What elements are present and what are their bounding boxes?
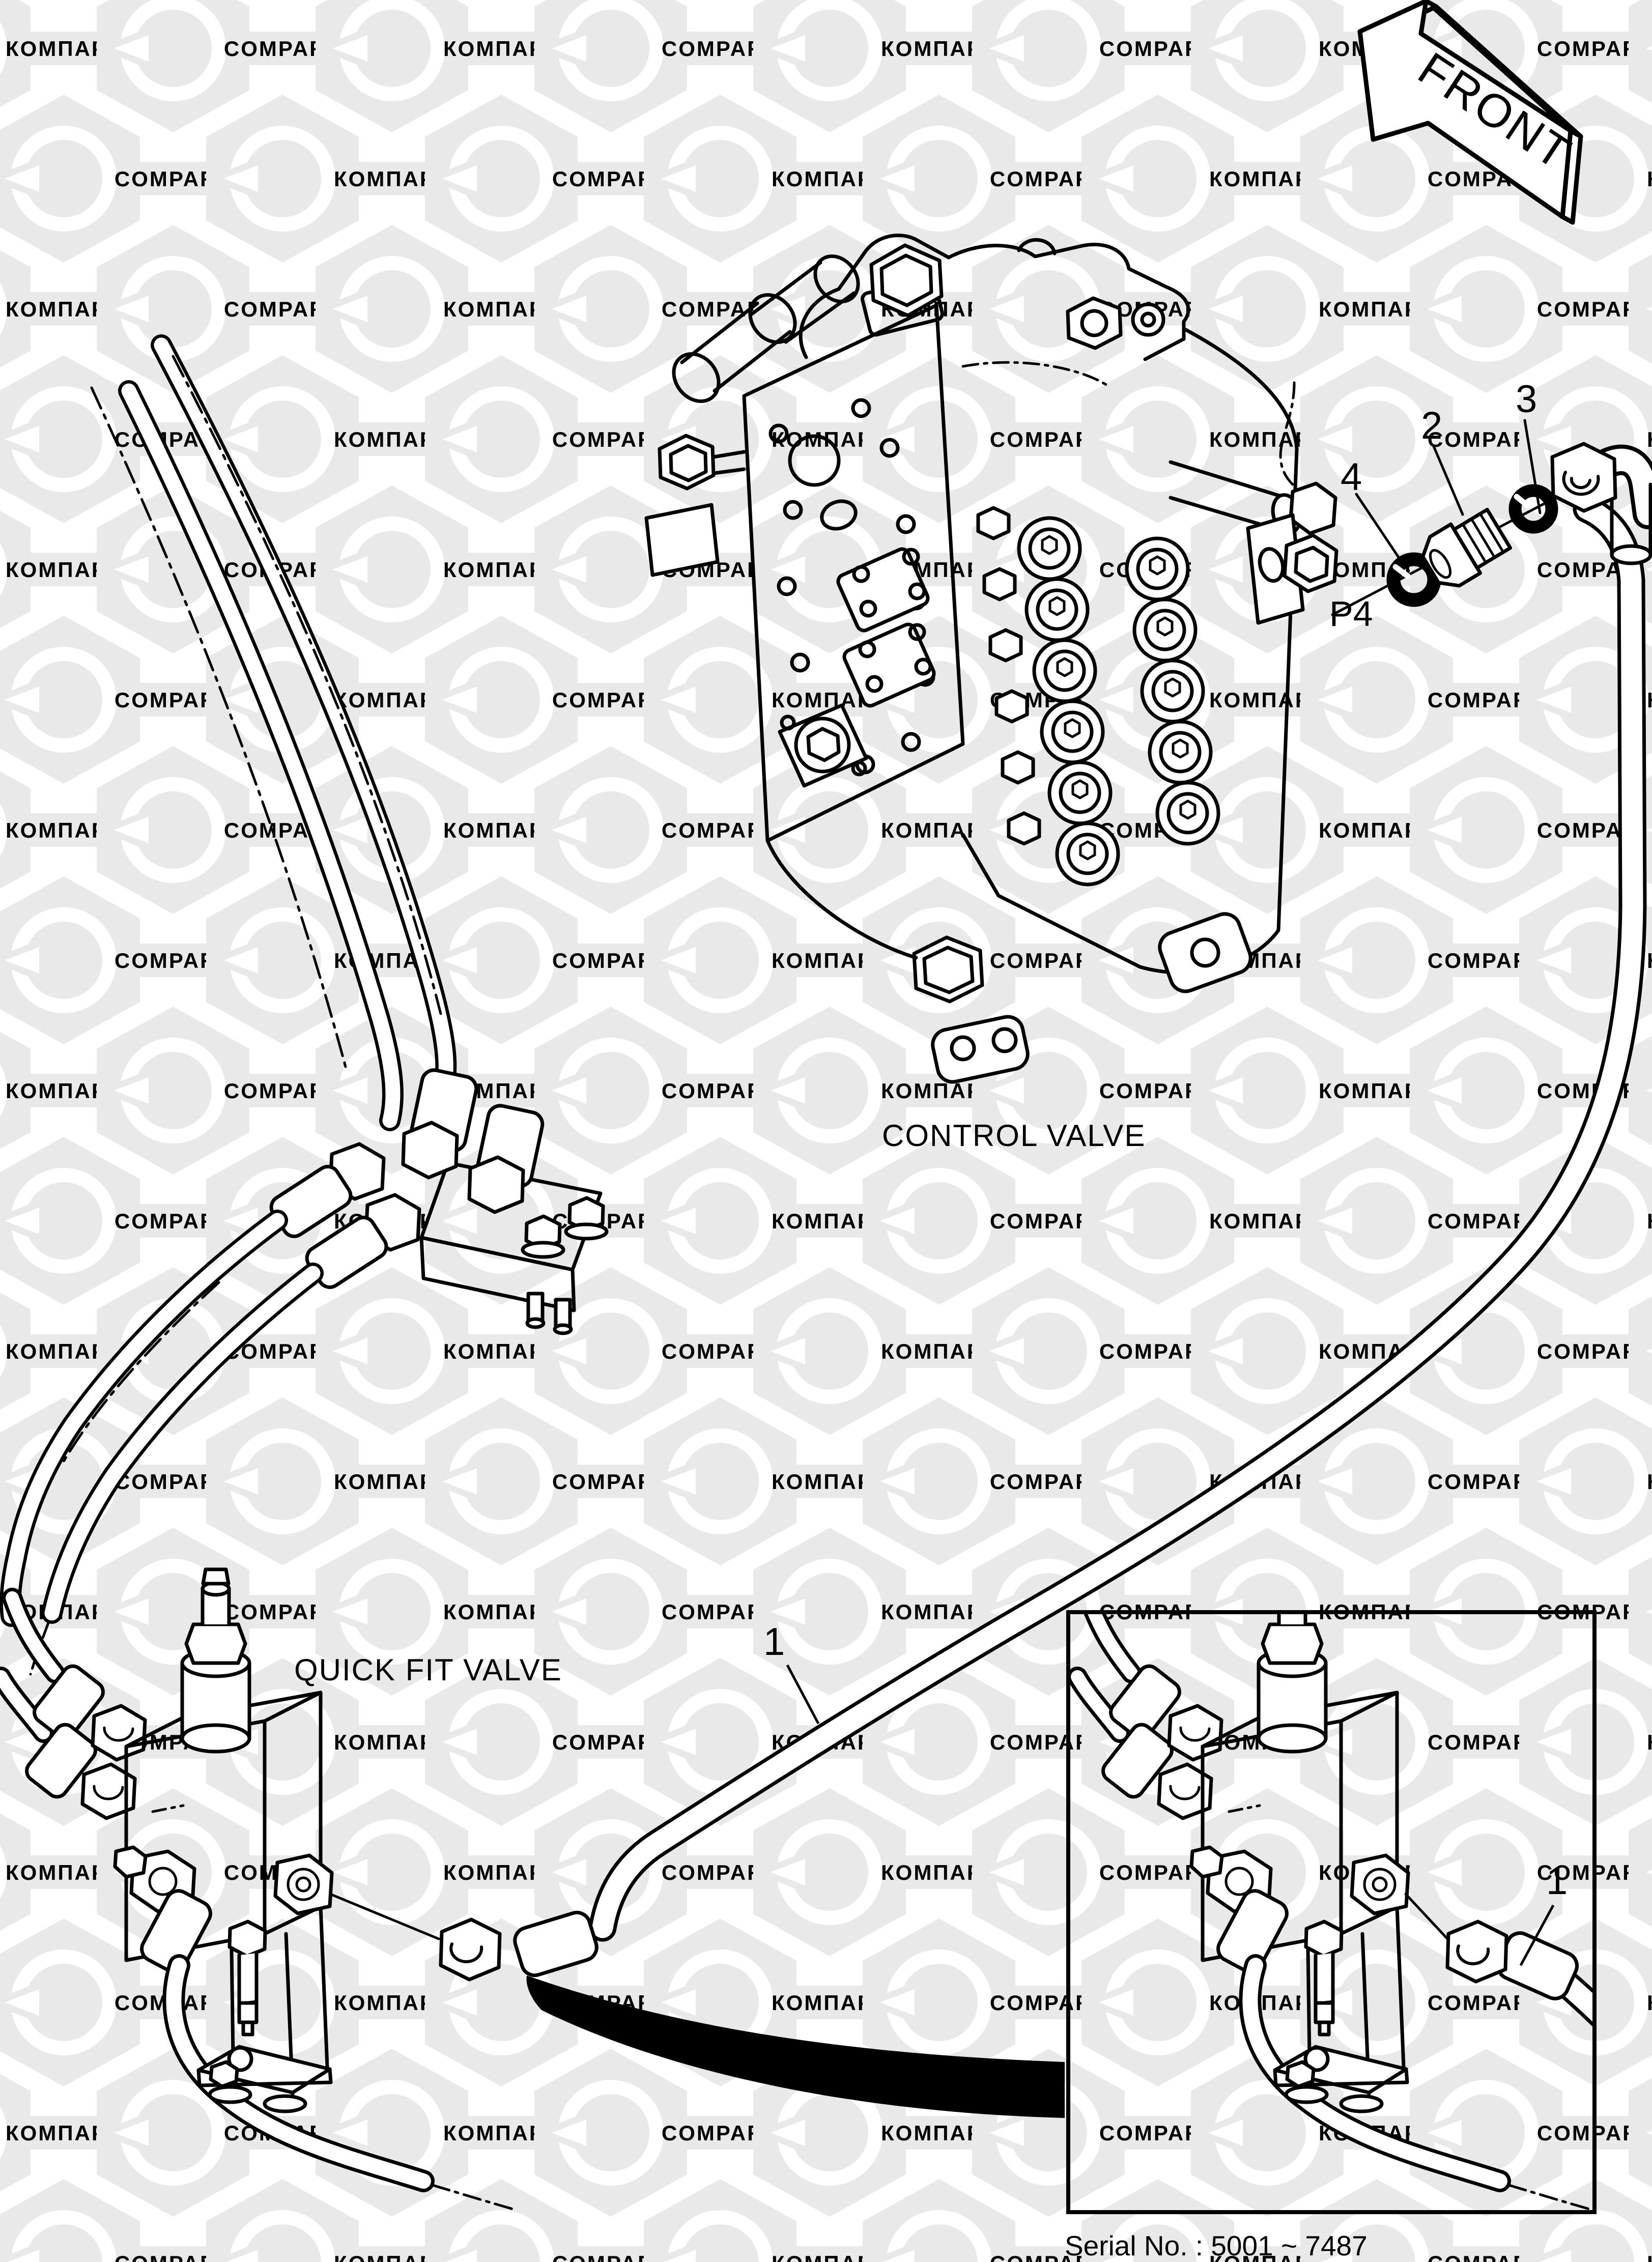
watermark-text: КОМПАРТ [1647,949,1652,972]
watermark-text: КОМПАРТ [1647,1991,1652,2015]
label-quick-fit-valve: QUICK FIT VALVE [294,1653,562,1687]
label-p4: P4 [1329,594,1373,634]
hose1-elbow-nut [1552,444,1615,511]
callout-4: 4 [1341,455,1362,499]
callout-3: 3 [1516,378,1537,421]
label-control-valve: CONTROL VALVE [882,1119,1146,1153]
watermark-text: КОМПАРТ [1647,688,1652,712]
watermark-text: КОМПАРТ [1647,2251,1652,2262]
watermark-text: КОМПАРТ [1647,1730,1652,1754]
watermark-text: КОМПАРТ [1647,427,1652,451]
watermark-text: КОМПАРТ [1647,167,1652,191]
watermark-text: КОМПАРТ [1647,1209,1652,1233]
callout-2: 2 [1421,404,1442,447]
serial-number-note: Serial No. : 5001 ~ 7487 [1065,2230,1368,2261]
watermark-text: КОМПАРТ [1647,1470,1652,1494]
callout-1-main: 1 [763,1620,785,1664]
callout-1-inset: 1 [1546,1859,1568,1903]
parts-diagram-page: COMPARTКОМПАРТCOMPARTКОМПАРТCOMPARTКОМПА… [0,0,1652,2262]
